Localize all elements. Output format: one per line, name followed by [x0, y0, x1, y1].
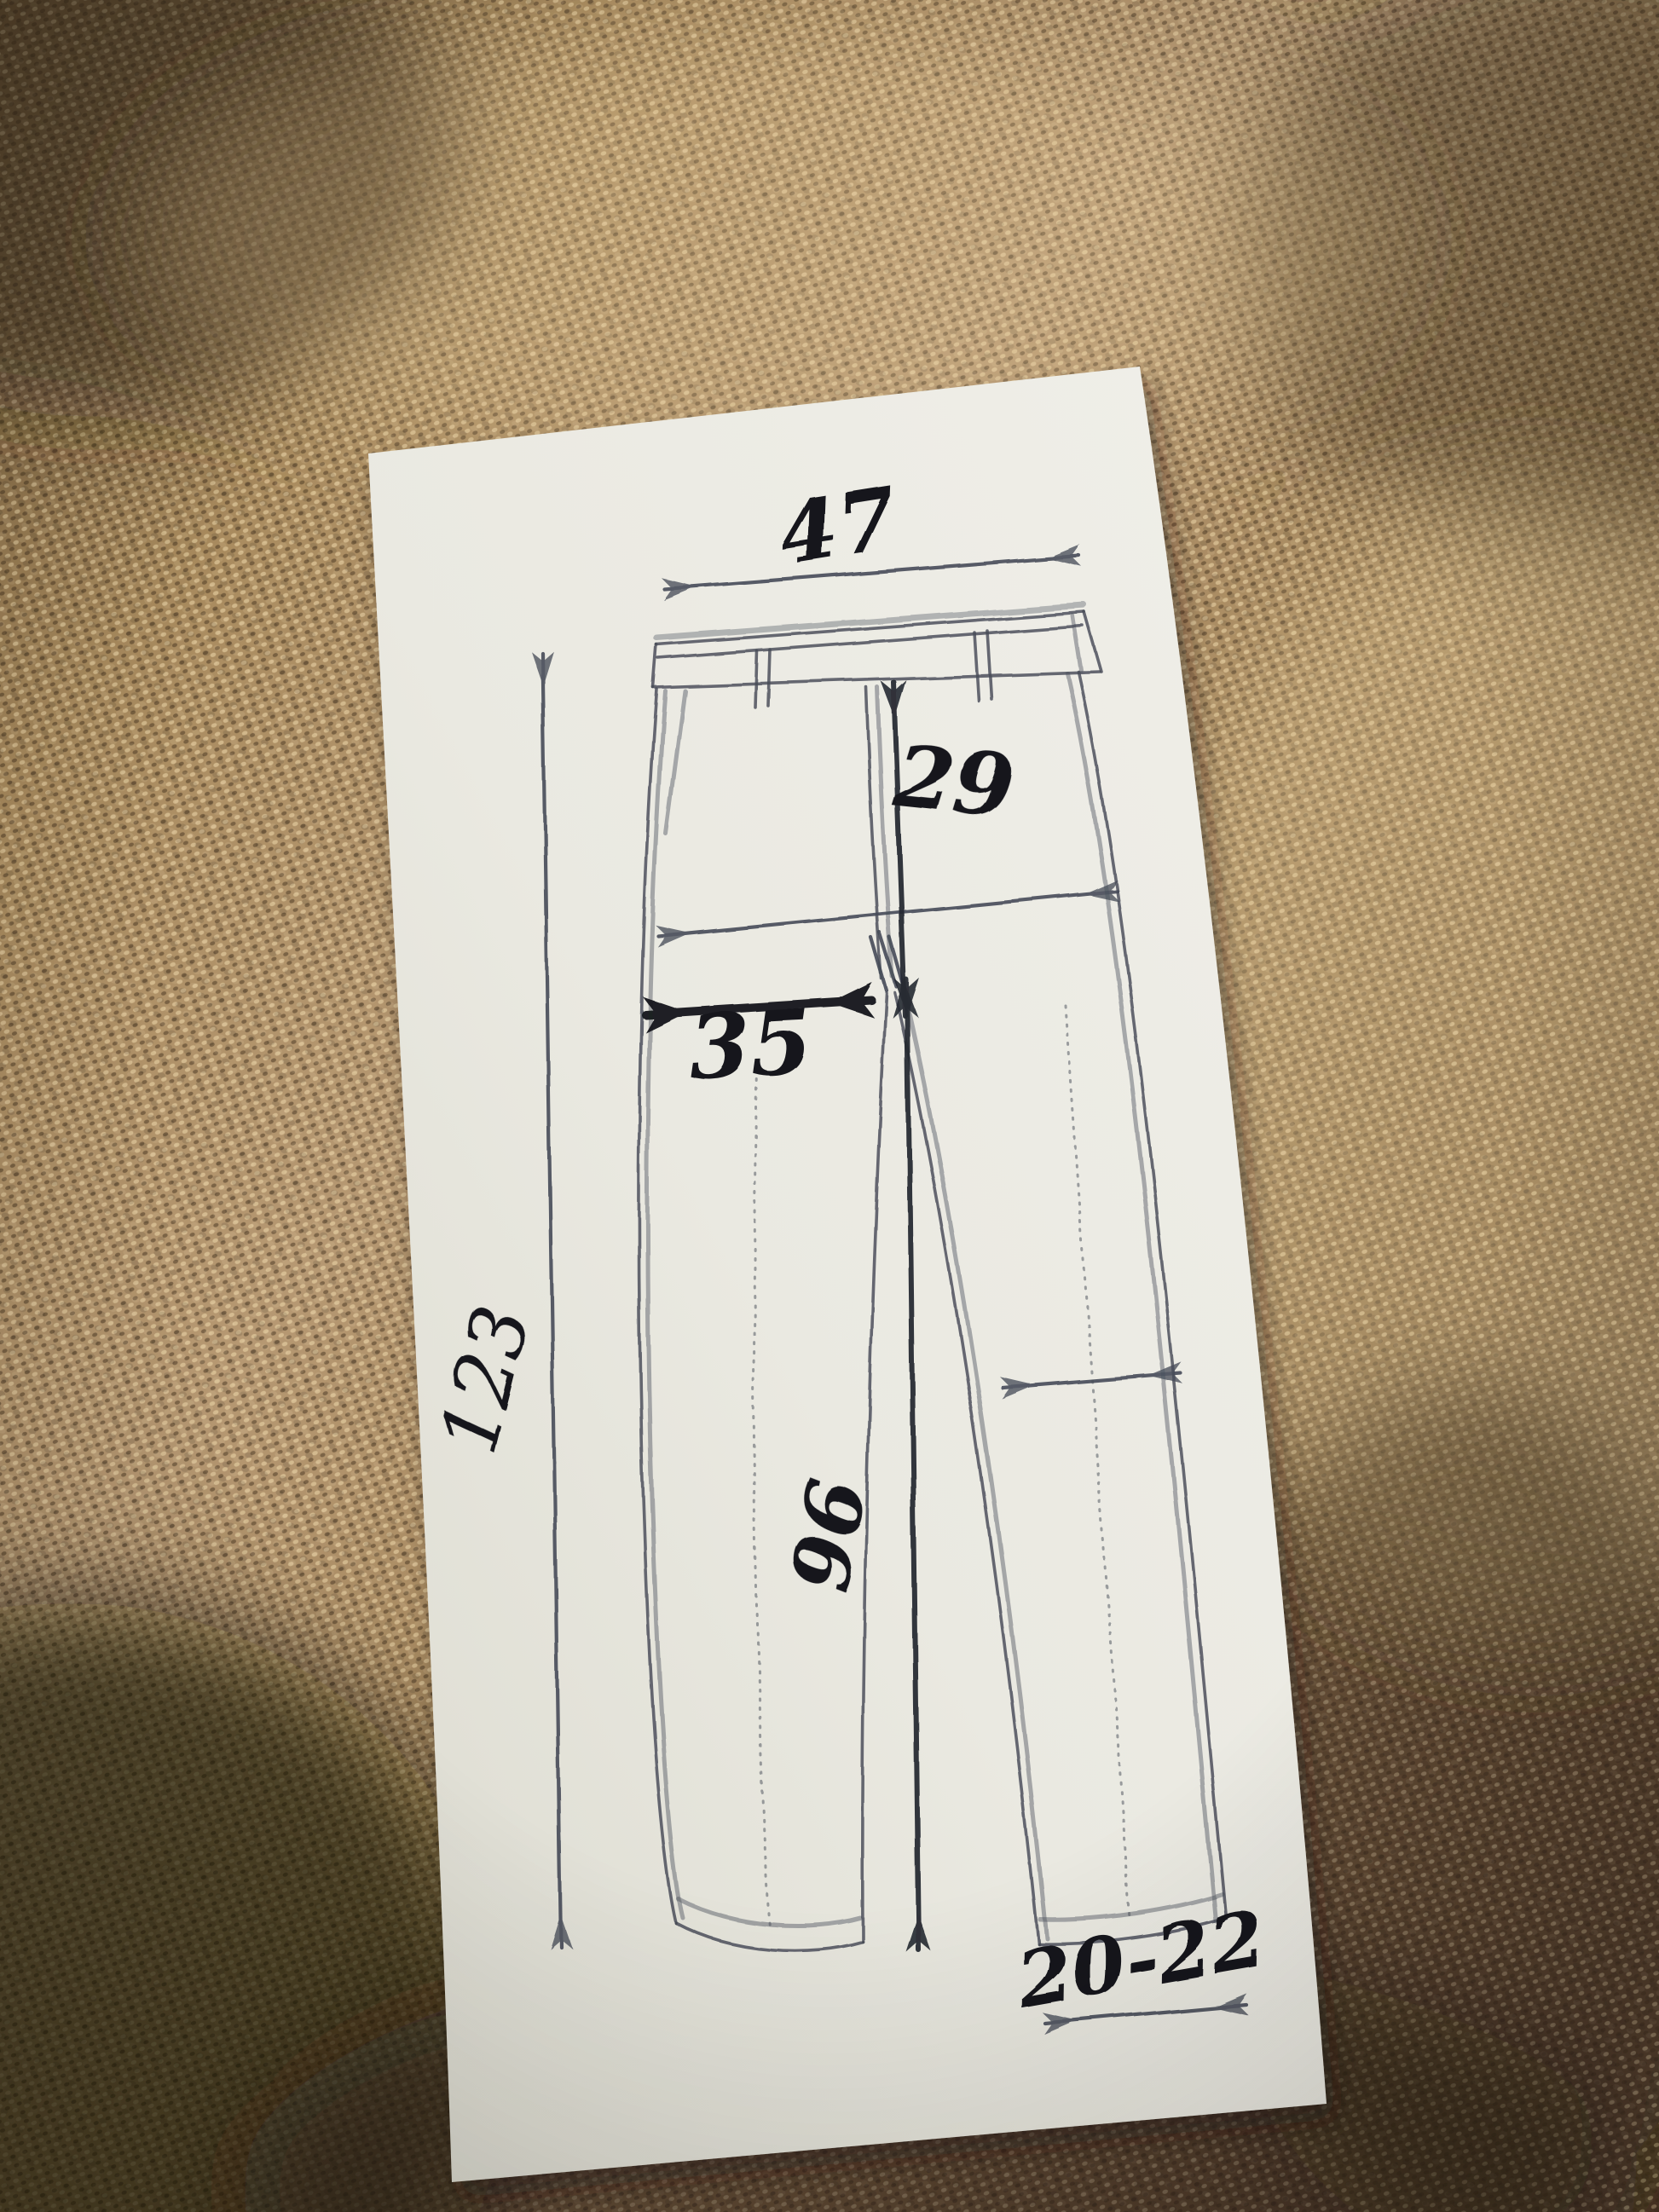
photo-of-measurement-note: 47 29 35 123 96 20-22 [0, 0, 1659, 2212]
photo-vignette [0, 0, 1659, 2212]
